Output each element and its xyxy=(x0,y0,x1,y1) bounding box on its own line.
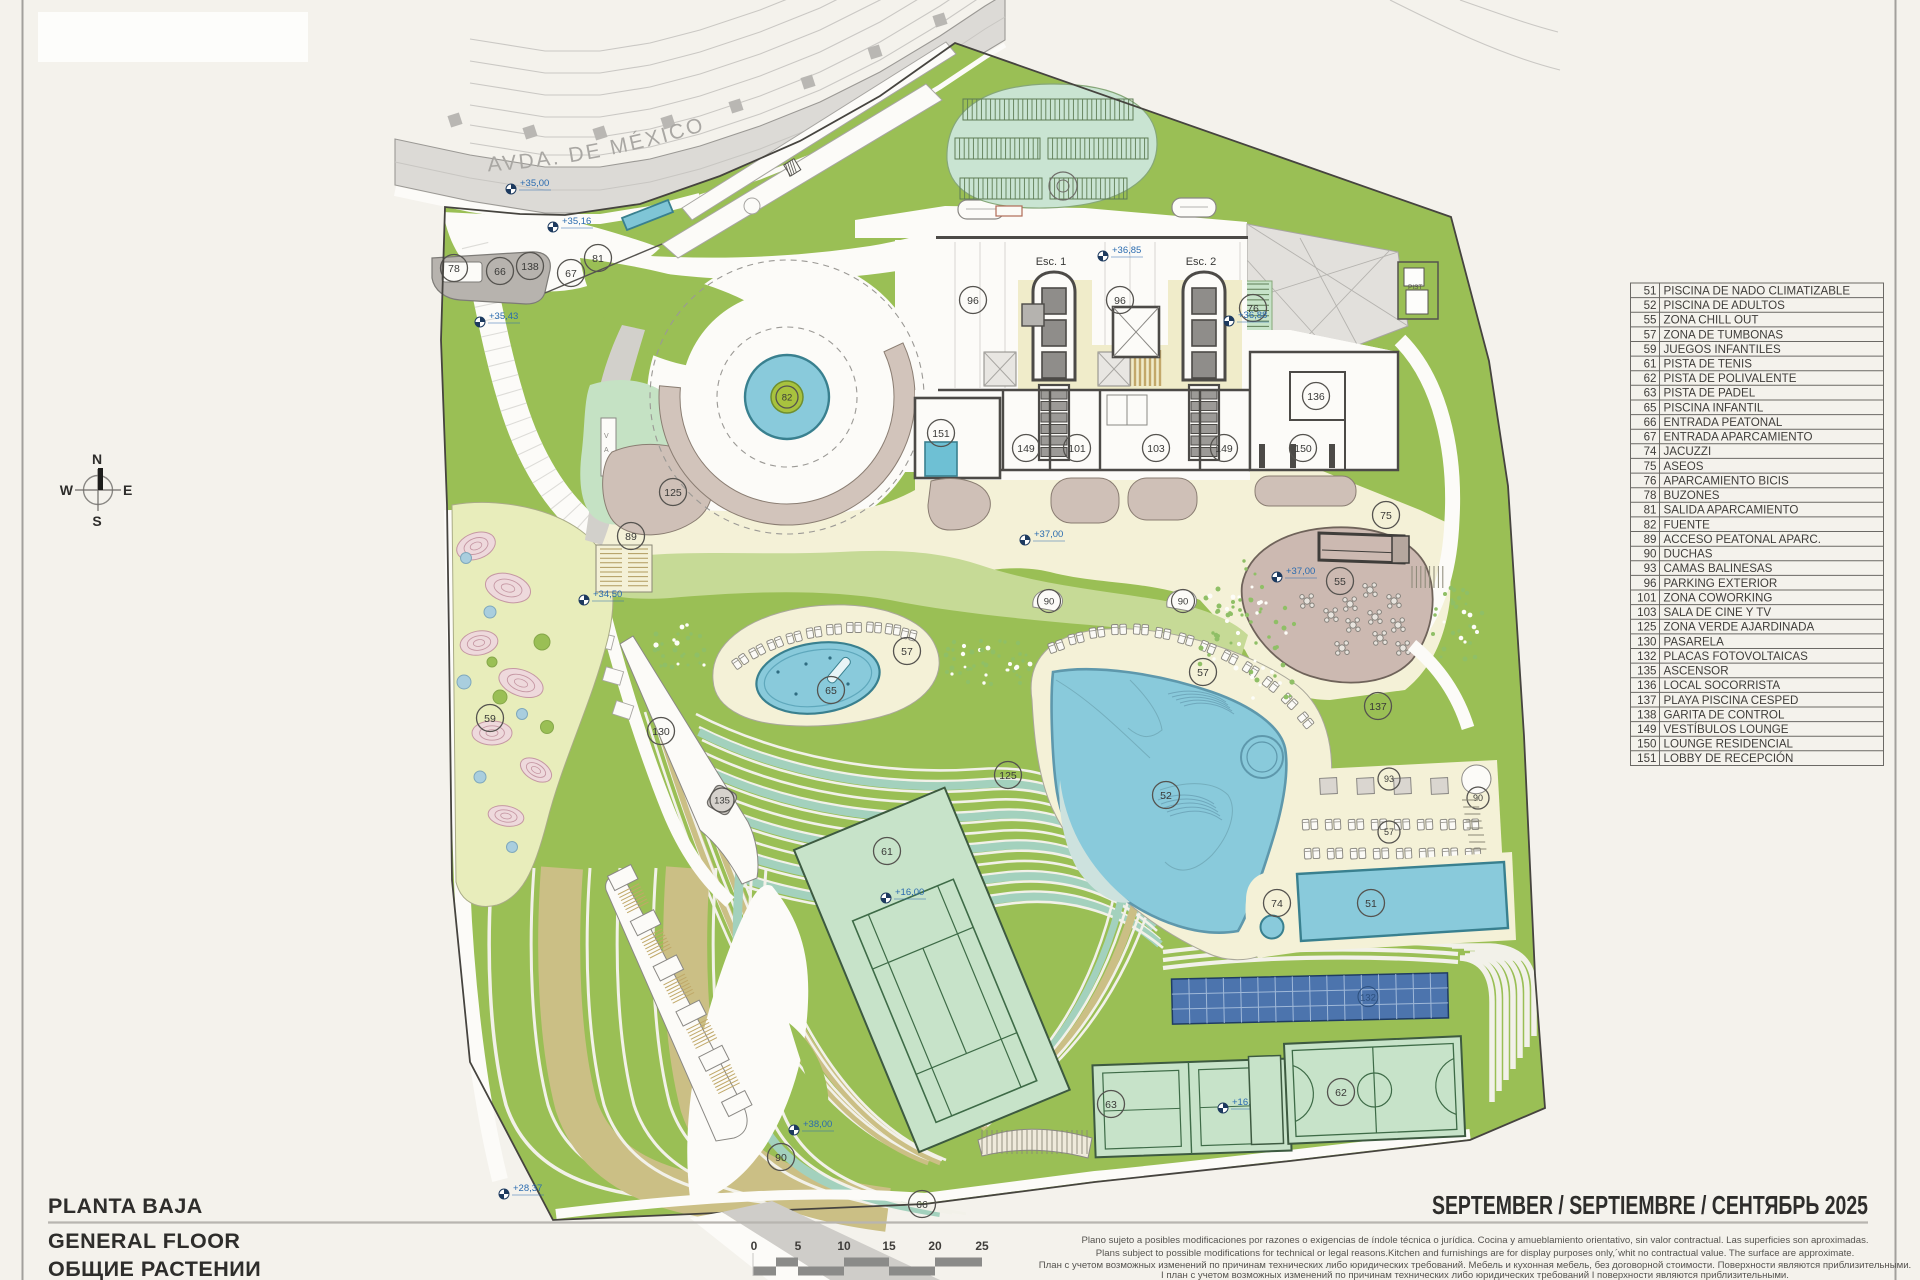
svg-text:Esc. 2: Esc. 2 xyxy=(1186,256,1217,268)
svg-text:78: 78 xyxy=(448,263,460,275)
svg-text:81: 81 xyxy=(592,253,604,265)
svg-text:20: 20 xyxy=(928,1239,942,1253)
svg-text:PLACAS FOTOVOLTAICAS: PLACAS FOTOVOLTAICAS xyxy=(1664,650,1809,663)
svg-text:ENTRADA PEATONAL: ENTRADA PEATONAL xyxy=(1664,416,1783,429)
svg-text:51: 51 xyxy=(1365,898,1377,910)
svg-text:Esc. 1: Esc. 1 xyxy=(1036,256,1067,268)
svg-text:BUZONES: BUZONES xyxy=(1664,489,1720,502)
svg-text:149: 149 xyxy=(1215,443,1233,455)
svg-text:67: 67 xyxy=(1644,431,1657,444)
svg-text:W: W xyxy=(60,482,74,498)
svg-text:90: 90 xyxy=(1644,548,1657,561)
svg-text:125: 125 xyxy=(1637,621,1656,634)
svg-text:JACUZZI: JACUZZI xyxy=(1664,445,1712,458)
svg-text:101: 101 xyxy=(1637,591,1656,604)
svg-text:137: 137 xyxy=(1637,694,1656,707)
svg-text:55: 55 xyxy=(1644,314,1657,327)
svg-text:52: 52 xyxy=(1644,299,1657,312)
svg-text:96: 96 xyxy=(1644,577,1657,590)
svg-text:57: 57 xyxy=(901,646,913,658)
svg-text:V: V xyxy=(604,433,609,440)
svg-text:63: 63 xyxy=(1105,1099,1117,1111)
svg-text:57: 57 xyxy=(1644,328,1657,341)
svg-text:138: 138 xyxy=(1637,708,1656,721)
svg-text:81: 81 xyxy=(1644,504,1657,517)
svg-text:+37,00: +37,00 xyxy=(1286,566,1315,577)
svg-text:SEPTEMBER / SEPTIEMBRE / СЕНТЯ: SEPTEMBER / SEPTIEMBRE / СЕНТЯБРЬ 2025 xyxy=(1432,1190,1868,1220)
svg-text:90: 90 xyxy=(775,1152,787,1164)
svg-text:PISCINA INFANTIL: PISCINA INFANTIL xyxy=(1664,401,1764,414)
svg-text:62: 62 xyxy=(1644,372,1657,385)
svg-text:65: 65 xyxy=(825,685,837,697)
svg-text:90: 90 xyxy=(1473,793,1483,803)
svg-text:57: 57 xyxy=(1197,667,1209,679)
svg-text:74: 74 xyxy=(1644,445,1657,458)
svg-text:103: 103 xyxy=(1637,606,1656,619)
svg-text:103: 103 xyxy=(1147,443,1165,455)
svg-text:PARKING EXTERIOR: PARKING EXTERIOR xyxy=(1664,577,1778,590)
svg-text:PLANTA BAJA: PLANTA BAJA xyxy=(48,1194,203,1218)
svg-text:151: 151 xyxy=(932,428,950,440)
svg-text:135: 135 xyxy=(714,795,730,806)
svg-text:PISCINA DE NADO CLIMATIZABLE: PISCINA DE NADO CLIMATIZABLE xyxy=(1664,284,1851,297)
svg-text:132: 132 xyxy=(1360,993,1376,1004)
svg-text:96: 96 xyxy=(967,295,979,307)
svg-text:+35,43: +35,43 xyxy=(489,311,518,322)
svg-text:+37,00: +37,00 xyxy=(1034,529,1063,540)
svg-text:89: 89 xyxy=(1644,533,1657,546)
svg-text:JUEGOS INFANTILES: JUEGOS INFANTILES xyxy=(1664,343,1782,356)
svg-text:96: 96 xyxy=(1114,295,1126,307)
svg-text:90: 90 xyxy=(1044,597,1055,608)
svg-text:ASEOS: ASEOS xyxy=(1664,460,1704,473)
svg-text:66: 66 xyxy=(1644,416,1657,429)
svg-text:93: 93 xyxy=(1644,562,1657,575)
svg-text:DUCHAS: DUCHAS xyxy=(1664,548,1713,561)
svg-text:A: A xyxy=(604,447,609,454)
svg-text:137: 137 xyxy=(1369,701,1387,713)
svg-text:66: 66 xyxy=(494,266,506,278)
svg-text:82: 82 xyxy=(1644,518,1657,531)
svg-text:136: 136 xyxy=(1637,679,1656,692)
svg-text:SALIDA APARCAMIENTO: SALIDA APARCAMIENTO xyxy=(1664,504,1799,517)
svg-text:63: 63 xyxy=(1644,387,1657,400)
svg-text:55: 55 xyxy=(1334,576,1346,588)
svg-text:82: 82 xyxy=(782,392,793,403)
svg-text:125: 125 xyxy=(664,487,682,499)
svg-text:+36,88: +36,88 xyxy=(1238,310,1267,321)
svg-text:PISTA DE TENIS: PISTA DE TENIS xyxy=(1664,358,1753,371)
svg-text:125: 125 xyxy=(999,770,1017,782)
svg-text:+36,85: +36,85 xyxy=(1112,245,1141,256)
svg-text:ZONA CHILL OUT: ZONA CHILL OUT xyxy=(1664,314,1759,327)
svg-text:FUENTE: FUENTE xyxy=(1664,518,1711,531)
svg-text:SALA DE CINE Y TV: SALA DE CINE Y TV xyxy=(1664,606,1772,619)
svg-text:65: 65 xyxy=(1644,401,1657,414)
svg-text:ENTRADA APARCAMIENTO: ENTRADA APARCAMIENTO xyxy=(1664,431,1813,444)
svg-text:15: 15 xyxy=(882,1239,896,1253)
svg-text:135: 135 xyxy=(1637,665,1656,678)
svg-text:ACCESO PEATONAL APARC.: ACCESO PEATONAL APARC. xyxy=(1664,533,1821,546)
svg-text:PASARELA: PASARELA xyxy=(1664,635,1725,648)
svg-text:90: 90 xyxy=(1178,597,1189,608)
svg-text:59: 59 xyxy=(484,713,496,725)
svg-text:67: 67 xyxy=(565,268,577,280)
svg-text:Plans subject to possible modi: Plans subject to possible modifications … xyxy=(1096,1248,1855,1259)
svg-text:LOBBY DE RECEPCIÓN: LOBBY DE RECEPCIÓN xyxy=(1664,752,1794,765)
svg-text:PLAYA PISCINA CESPED: PLAYA PISCINA CESPED xyxy=(1664,694,1799,707)
svg-text:+35,00: +35,00 xyxy=(520,178,549,189)
svg-text:62: 62 xyxy=(1335,1087,1347,1099)
svg-text:130: 130 xyxy=(652,726,670,738)
svg-text:59: 59 xyxy=(1644,343,1657,356)
svg-text:PISTA DE POLIVALENTE: PISTA DE POLIVALENTE xyxy=(1664,372,1797,385)
svg-text:66: 66 xyxy=(916,1199,928,1211)
svg-text:+34,50: +34,50 xyxy=(593,589,622,600)
svg-text:ZONA DE TUMBONAS: ZONA DE TUMBONAS xyxy=(1664,328,1784,341)
svg-text:101: 101 xyxy=(1068,443,1086,455)
svg-text:93: 93 xyxy=(1384,774,1394,784)
svg-text:E: E xyxy=(123,482,132,498)
svg-text:+28,37: +28,37 xyxy=(513,1183,542,1194)
svg-text:VESTÍBULOS LOUNGE: VESTÍBULOS LOUNGE xyxy=(1664,723,1789,736)
svg-text:149: 149 xyxy=(1637,723,1656,736)
svg-text:І план с учетом возможных изме: І план с учетом возможных изменений по п… xyxy=(1161,1270,1789,1280)
svg-text:75: 75 xyxy=(1644,460,1657,473)
svg-text:150: 150 xyxy=(1637,738,1656,751)
svg-text:132: 132 xyxy=(1637,650,1656,663)
svg-text:0: 0 xyxy=(751,1239,758,1253)
svg-text:CAMAS BALINESAS: CAMAS BALINESAS xyxy=(1664,562,1773,575)
svg-text:+38,00: +38,00 xyxy=(803,1119,832,1130)
svg-text:PIST: PIST xyxy=(1408,284,1422,291)
svg-text:75: 75 xyxy=(1380,510,1392,522)
svg-text:APARCAMIENTO BICIS: APARCAMIENTO BICIS xyxy=(1664,475,1789,488)
svg-text:PISTA DE PADEL: PISTA DE PADEL xyxy=(1664,387,1756,400)
svg-text:151: 151 xyxy=(1637,752,1656,765)
svg-text:76: 76 xyxy=(1644,475,1657,488)
svg-text:Plano sujeto a posibles modifi: Plano sujeto a posibles modificaciones p… xyxy=(1081,1235,1868,1246)
svg-text:130: 130 xyxy=(1637,635,1656,648)
svg-text:51: 51 xyxy=(1644,284,1657,297)
svg-text:61: 61 xyxy=(1644,358,1657,371)
svg-text:GENERAL FLOOR: GENERAL FLOOR xyxy=(48,1229,240,1253)
svg-text:149: 149 xyxy=(1017,443,1035,455)
svg-text:89: 89 xyxy=(625,531,637,543)
svg-text:+35,16: +35,16 xyxy=(562,216,591,227)
svg-text:78: 78 xyxy=(1644,489,1657,502)
svg-text:10: 10 xyxy=(837,1239,851,1253)
svg-text:138: 138 xyxy=(521,261,539,273)
svg-text:136: 136 xyxy=(1307,391,1325,403)
svg-text:150: 150 xyxy=(1294,443,1312,455)
svg-text:57: 57 xyxy=(1384,827,1394,837)
svg-text:74: 74 xyxy=(1271,898,1283,910)
svg-text:ASCENSOR: ASCENSOR xyxy=(1664,665,1729,678)
svg-text:52: 52 xyxy=(1160,790,1172,802)
svg-text:GARITA DE CONTROL: GARITA DE CONTROL xyxy=(1664,708,1785,721)
svg-text:5: 5 xyxy=(795,1239,802,1253)
svg-text:25: 25 xyxy=(975,1239,989,1253)
svg-text:ZONA COWORKING: ZONA COWORKING xyxy=(1664,591,1773,604)
svg-text:N: N xyxy=(92,451,102,467)
svg-text:LOCAL SOCORRISTA: LOCAL SOCORRISTA xyxy=(1664,679,1781,692)
svg-text:ZONA VERDE AJARDINADA: ZONA VERDE AJARDINADA xyxy=(1664,621,1815,634)
svg-text:S: S xyxy=(92,513,101,529)
svg-text:ОБЩИЕ РАСТЕНИИ: ОБЩИЕ РАСТЕНИИ xyxy=(48,1257,261,1280)
svg-text:LOUNGE RESIDENCIAL: LOUNGE RESIDENCIAL xyxy=(1664,738,1794,751)
svg-text:PISCINA DE ADULTOS: PISCINA DE ADULTOS xyxy=(1664,299,1786,312)
svg-text:+16,00: +16,00 xyxy=(895,887,924,898)
svg-text:61: 61 xyxy=(881,846,893,858)
